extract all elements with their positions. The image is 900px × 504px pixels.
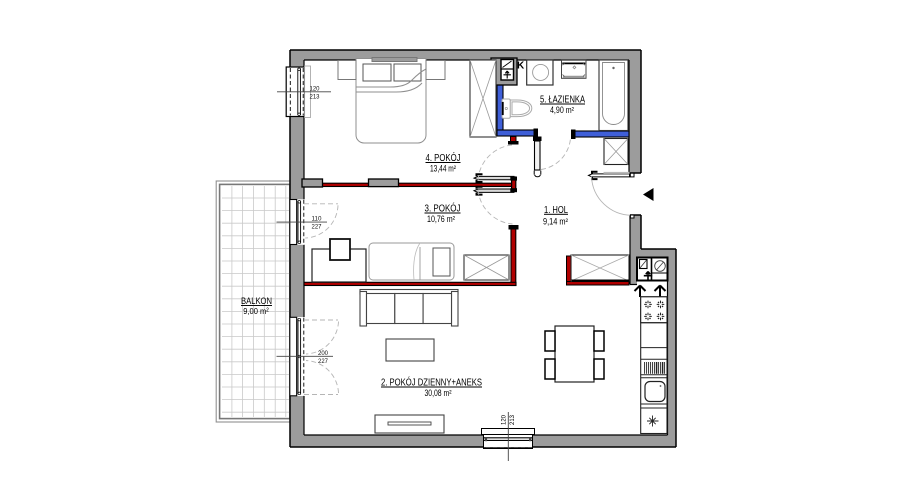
svg-text:1. HOL: 1. HOL [544,205,568,216]
svg-text:2. POKÓJ DZIENNY+ANEKS: 2. POKÓJ DZIENNY+ANEKS [381,376,482,389]
svg-text:110: 110 [312,216,322,223]
svg-text:4. POKÓJ: 4. POKÓJ [426,151,461,164]
svg-text:4,90 m²: 4,90 m² [550,105,574,115]
svg-text:200: 200 [318,350,328,357]
svg-text:9,00 m²: 9,00 m² [243,306,269,316]
svg-text:3. POKÓJ: 3. POKÓJ [425,202,461,215]
svg-text:227: 227 [312,224,322,231]
svg-text:30,08 m²: 30,08 m² [425,388,452,398]
svg-text:213: 213 [509,415,516,425]
svg-text:K: K [517,61,525,72]
svg-text:120: 120 [310,85,320,92]
svg-text:13,44 m²: 13,44 m² [430,164,456,174]
svg-text:120: 120 [500,415,507,425]
svg-text:10,76 m²: 10,76 m² [427,214,455,224]
svg-text:9,14 m²: 9,14 m² [543,217,568,227]
svg-text:213: 213 [310,93,320,100]
svg-text:227: 227 [318,358,328,365]
svg-text:5. ŁAZIENKA: 5. ŁAZIENKA [540,95,585,106]
